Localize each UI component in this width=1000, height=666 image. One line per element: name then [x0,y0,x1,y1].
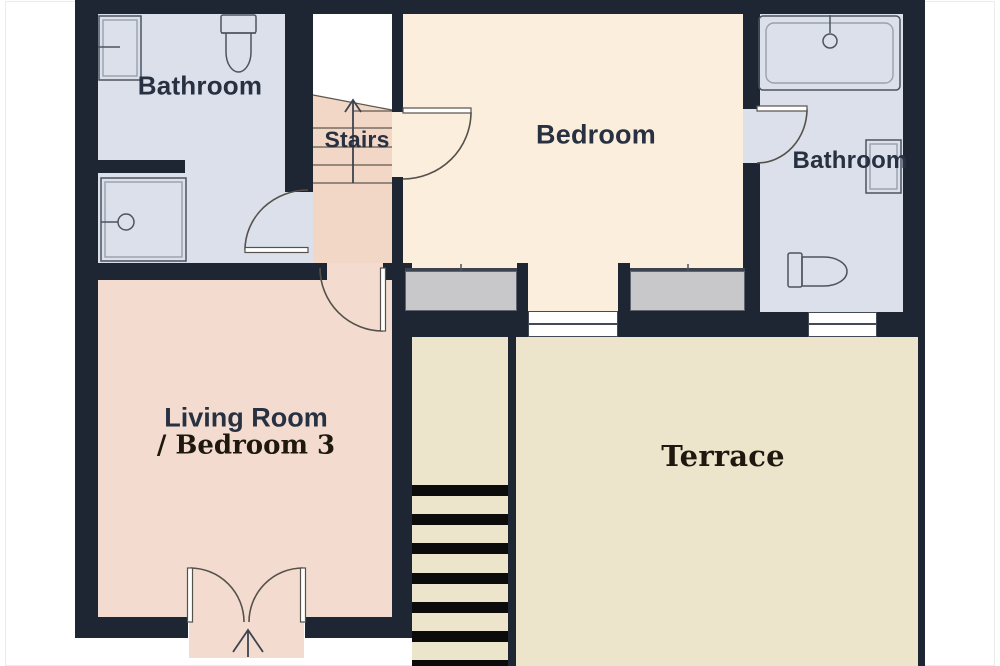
bedroom-door [403,108,471,179]
bedroom-label: Bedroom [536,120,656,151]
stairs-label: Stairs [324,127,389,154]
floorplan-canvas: Bathroom Stairs Bedroom Bathroom Living … [0,0,1000,666]
entrance-double-door [188,568,306,622]
bathroom-right-label: Bathroom [793,147,908,175]
bathroom-top-left-label: Bathroom [138,71,262,102]
living-room-label: Living Room / Bedroom 3 [157,405,335,460]
sink-icon [98,16,141,80]
bathtub-icon [759,15,900,90]
toilet-icon [788,253,847,287]
toilet-icon [221,15,256,72]
entrance-arrow-icon [233,630,263,657]
terrace-label: Terrace [661,439,785,473]
living-room-door [320,268,386,331]
bathroom-top-left-door [245,190,308,253]
shower-icon [101,178,186,261]
